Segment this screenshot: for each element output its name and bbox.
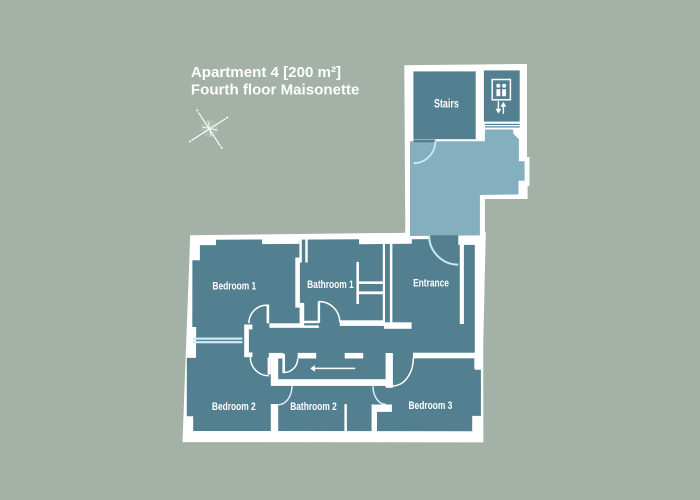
svg-text:Stairs: Stairs (434, 97, 459, 111)
svg-text:Fourth floor Maisonette: Fourth floor Maisonette (191, 82, 360, 99)
svg-text:Entrance: Entrance (413, 277, 449, 289)
svg-text:Bedroom 3: Bedroom 3 (409, 400, 453, 412)
svg-text:Bedroom 1: Bedroom 1 (212, 280, 256, 292)
svg-text:Bedroom 2: Bedroom 2 (212, 401, 256, 413)
svg-text:Bathroom 1: Bathroom 1 (307, 279, 354, 291)
svg-text:Bathroom 2: Bathroom 2 (290, 401, 337, 413)
svg-text:Apartment 4 [200 m²]: Apartment 4 [200 m²] (191, 64, 341, 81)
